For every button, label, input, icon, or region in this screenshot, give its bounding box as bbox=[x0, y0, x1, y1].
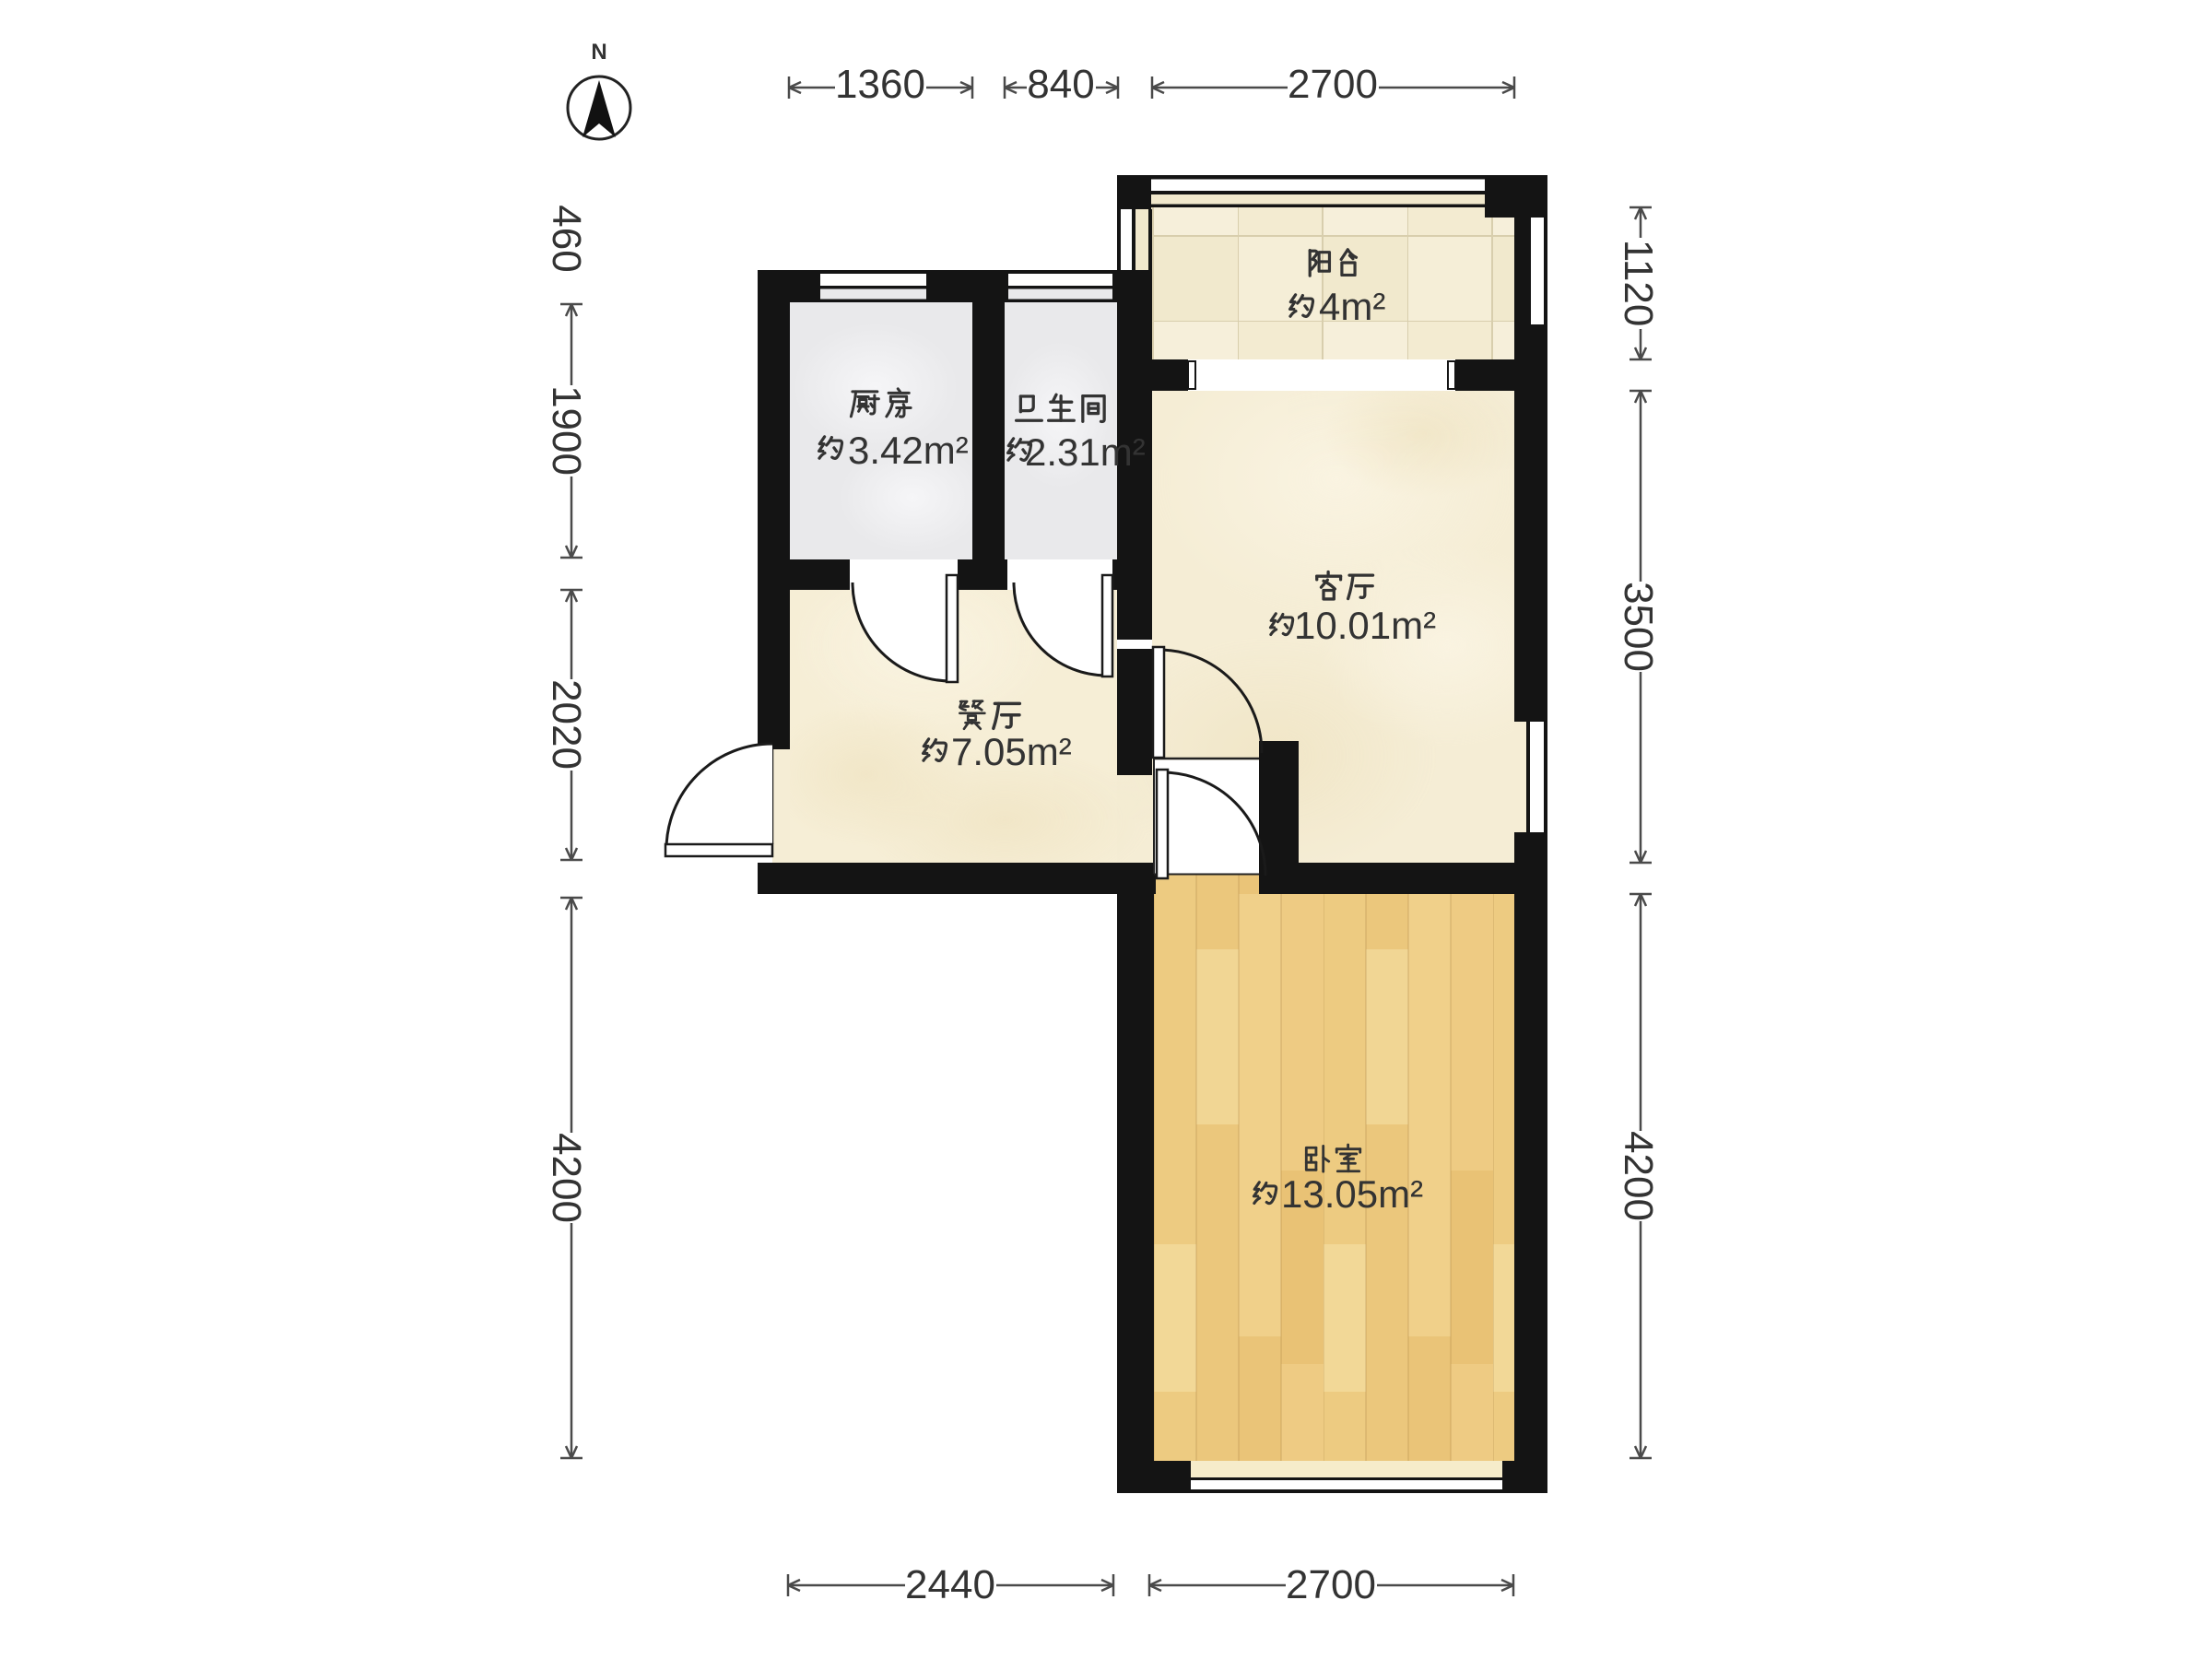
svg-text:7.05m²: 7.05m² bbox=[951, 730, 1072, 773]
svg-text:2700: 2700 bbox=[1288, 62, 1378, 107]
svg-text:10.01m²: 10.01m² bbox=[1294, 604, 1436, 647]
svg-text:460: 460 bbox=[544, 205, 589, 272]
svg-text:1900: 1900 bbox=[544, 385, 589, 476]
svg-text:3500: 3500 bbox=[1616, 582, 1661, 672]
svg-text:1120: 1120 bbox=[1616, 240, 1661, 327]
svg-text:840: 840 bbox=[1027, 62, 1094, 107]
svg-text:4m²: 4m² bbox=[1319, 285, 1385, 328]
svg-text:3.42m²: 3.42m² bbox=[848, 429, 969, 472]
svg-text:1360: 1360 bbox=[835, 62, 925, 107]
svg-text:N: N bbox=[591, 40, 606, 65]
svg-text:2.31m²: 2.31m² bbox=[1025, 430, 1146, 474]
svg-text:2700: 2700 bbox=[1286, 1562, 1376, 1607]
svg-text:4200: 4200 bbox=[544, 1133, 589, 1223]
svg-text:4200: 4200 bbox=[1616, 1131, 1661, 1221]
svg-text:2440: 2440 bbox=[905, 1562, 995, 1607]
svg-text:13.05m²: 13.05m² bbox=[1281, 1172, 1423, 1216]
svg-text:2020: 2020 bbox=[544, 679, 589, 770]
